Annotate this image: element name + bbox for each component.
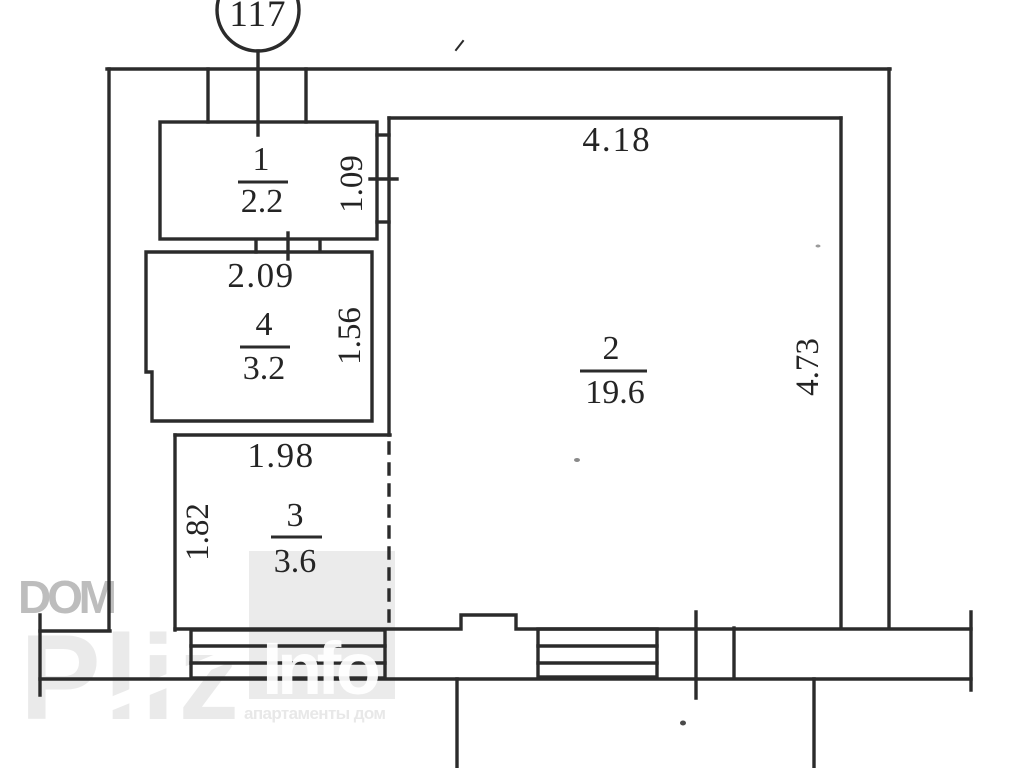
svg-text:4: 4 bbox=[256, 306, 273, 343]
svg-text:2.09: 2.09 bbox=[227, 256, 294, 295]
svg-text:1: 1 bbox=[253, 141, 270, 178]
svg-text:1.82: 1.82 bbox=[180, 503, 216, 561]
svg-text:3: 3 bbox=[287, 497, 304, 534]
svg-text:3.6: 3.6 bbox=[274, 543, 317, 580]
svg-text:1.98: 1.98 bbox=[247, 436, 314, 475]
svg-text:4.73: 4.73 bbox=[790, 338, 826, 396]
svg-text:19.6: 19.6 bbox=[585, 374, 645, 411]
svg-text:2: 2 bbox=[603, 330, 620, 367]
svg-text:2.2: 2.2 bbox=[241, 183, 284, 220]
svg-text:3.2: 3.2 bbox=[243, 350, 286, 387]
svg-text:117: 117 bbox=[229, 0, 286, 35]
svg-text:4.18: 4.18 bbox=[582, 120, 651, 159]
svg-text:1.56: 1.56 bbox=[332, 307, 368, 365]
svg-text:Info: Info bbox=[262, 627, 381, 710]
svg-text:1.09: 1.09 bbox=[334, 155, 370, 213]
